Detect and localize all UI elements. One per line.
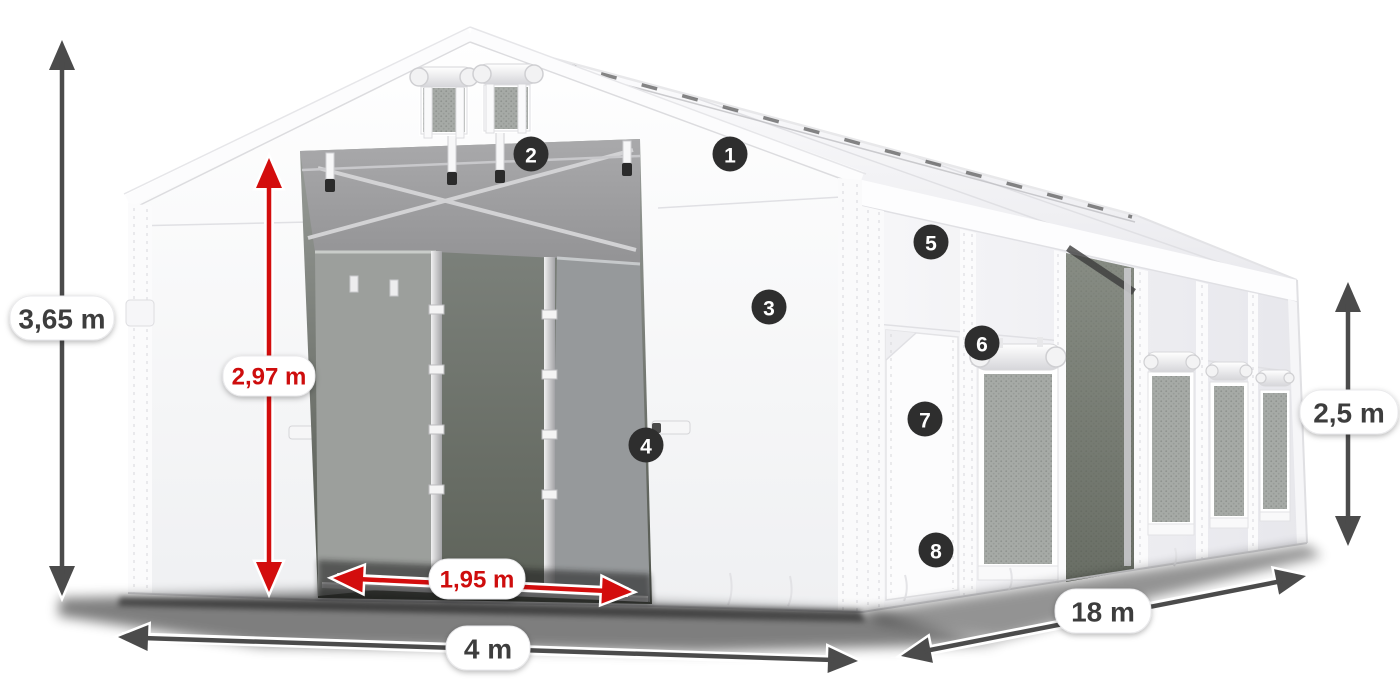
- callout-badge-1-number: 1: [724, 145, 736, 168]
- dim-side-height-label: 2,5 m: [1313, 398, 1385, 429]
- entrance-opening: [300, 126, 652, 604]
- gable-vent-left: [410, 67, 478, 138]
- callout-badge-3-number: 3: [763, 298, 775, 321]
- callout-badge-5: 5: [914, 225, 949, 260]
- callout-badge-4-number: 4: [640, 436, 652, 459]
- callout-badge-2-number: 2: [525, 145, 537, 168]
- side-window-4: [1256, 370, 1294, 521]
- interior-partition-left: [315, 252, 438, 596]
- tent-diagram-svg: 3,65 m 2,97 m 1,95 m 4 m 18 m: [0, 0, 1400, 700]
- dim-entrance-height-label: 2,97 m: [232, 364, 307, 391]
- callout-badge-6: 6: [965, 326, 1000, 361]
- side-window-1-mesh: [984, 374, 1052, 564]
- callout-badge-7: 7: [908, 402, 943, 437]
- callout-badge-7-number: 7: [919, 410, 931, 433]
- callout-badge-8-number: 8: [930, 541, 942, 564]
- callout-badge-2: 2: [514, 137, 549, 172]
- callout-badge-5-number: 5: [925, 233, 937, 256]
- callout-badge-4: 4: [629, 428, 664, 463]
- door-pole-right: [542, 257, 557, 591]
- interior-middle: [436, 252, 557, 590]
- side-window-3: [1206, 362, 1252, 528]
- side-window-2: [1144, 352, 1200, 535]
- arrowhead-right: [1274, 563, 1308, 594]
- dim-width-label: 4 m: [464, 634, 512, 665]
- callout-badge-1: 1: [713, 137, 748, 172]
- side-window-1: [970, 337, 1066, 580]
- dim-total-height-label: 3,65 m: [18, 304, 105, 335]
- dim-length-label: 18 m: [1071, 597, 1135, 628]
- interior-partition-right: [551, 258, 650, 602]
- door-pole-left: [429, 251, 444, 585]
- dim-side-height: 2,5 m: [1300, 282, 1398, 546]
- tent-dimensions-diagram: 3,65 m 2,97 m 1,95 m 4 m 18 m: [0, 0, 1400, 700]
- callout-badge-8: 8: [919, 533, 954, 568]
- dim-total-height: 3,65 m: [10, 40, 114, 596]
- dim-entrance-width-label: 1,95 m: [440, 567, 515, 594]
- callout-badge-3: 3: [752, 290, 787, 325]
- callout-badge-6-number: 6: [976, 334, 988, 357]
- tent-illustration: [124, 27, 1307, 612]
- side-open-section: [1066, 248, 1134, 582]
